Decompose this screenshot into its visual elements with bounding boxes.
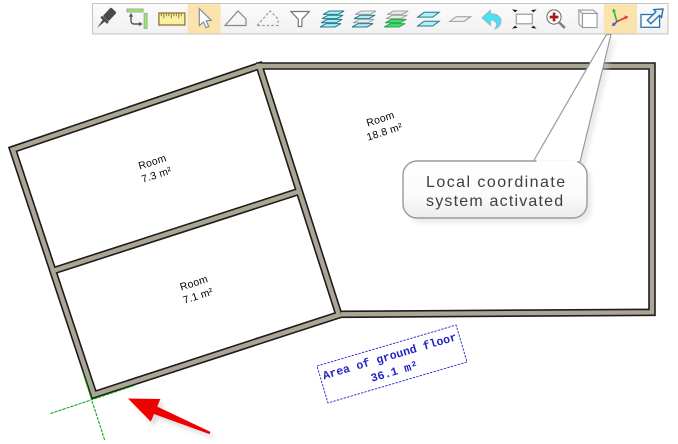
svg-text:Local coordinate: Local coordinate [426,174,567,191]
svg-text:system activated: system activated [426,193,564,210]
